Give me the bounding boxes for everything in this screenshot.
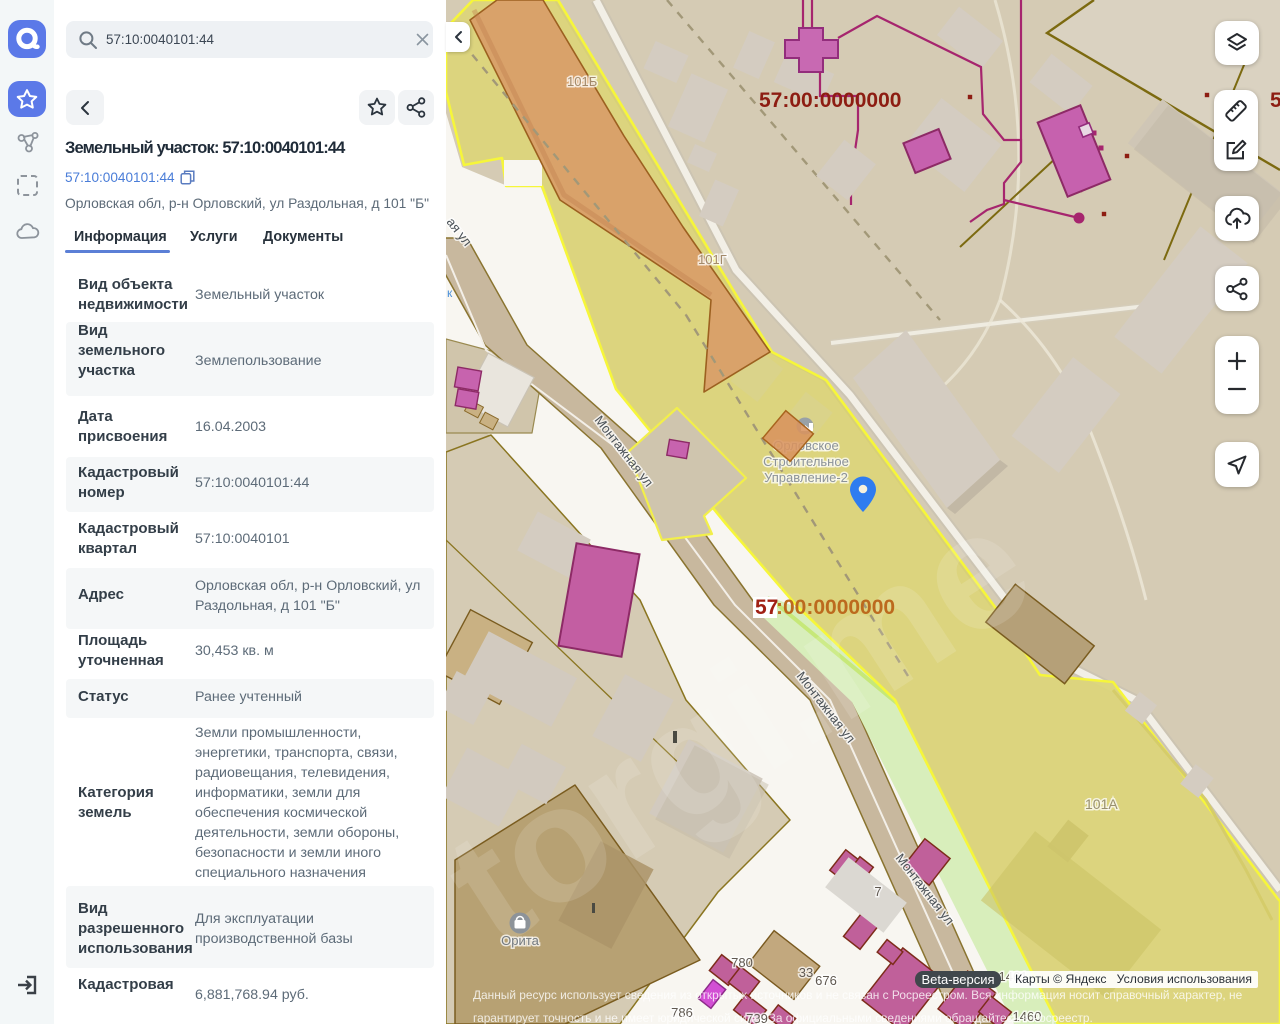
svg-text:Орита: Орита — [501, 933, 539, 948]
svg-text:57:00:0000000: 57:00:0000000 — [759, 89, 901, 112]
svg-text:33: 33 — [799, 965, 813, 980]
svg-text::00:0000000: :00:0000000 — [776, 596, 895, 619]
svg-text:101А: 101А — [1085, 796, 1118, 812]
svg-text:Данный ресурс использует сведе: Данный ресурс использует сведения из отк… — [473, 988, 1243, 1002]
svg-text:7: 7 — [874, 884, 881, 899]
svg-text:57: 57 — [1270, 89, 1280, 112]
svg-text:676: 676 — [815, 973, 837, 988]
svg-text:гарантирует точность и не имее: гарантирует точность и не имеет юридичес… — [473, 1011, 1093, 1024]
svg-text:57: 57 — [755, 596, 778, 619]
svg-text:Управление-2: Управление-2 — [764, 470, 848, 485]
svg-text:780: 780 — [731, 955, 753, 970]
svg-text:Строительное: Строительное — [763, 454, 849, 469]
svg-text:101Б: 101Б — [567, 74, 597, 89]
svg-text:101Г: 101Г — [698, 252, 727, 267]
svg-text:к: к — [447, 286, 453, 300]
